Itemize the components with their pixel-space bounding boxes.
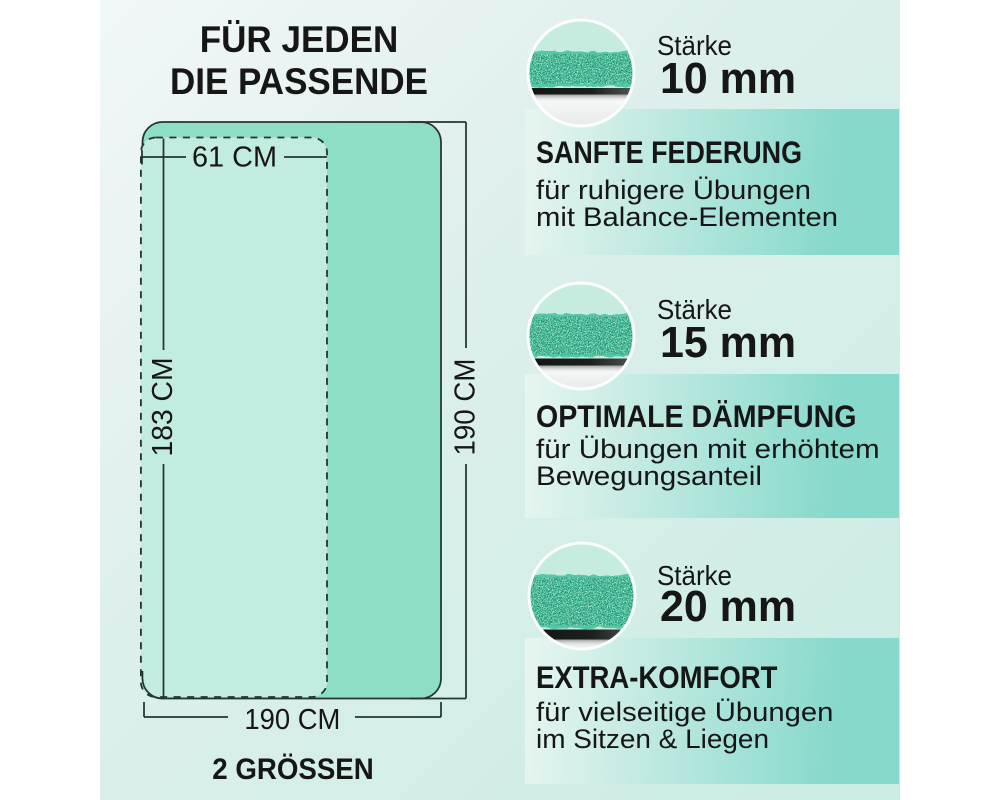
svg-text:183 CM: 183 CM bbox=[147, 358, 179, 457]
svg-text:61 CM: 61 CM bbox=[192, 142, 277, 174]
svg-text:190 CM: 190 CM bbox=[450, 359, 482, 456]
svg-text:190 CM: 190 CM bbox=[244, 704, 340, 736]
